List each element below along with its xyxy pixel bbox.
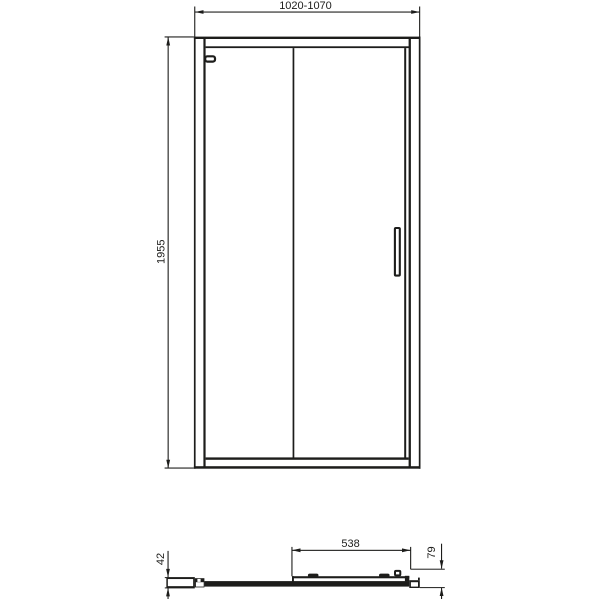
svg-text:42: 42 xyxy=(155,553,167,565)
svg-text:538: 538 xyxy=(341,538,359,550)
svg-text:1020-1070: 1020-1070 xyxy=(279,0,332,12)
svg-text:1955: 1955 xyxy=(155,240,167,264)
svg-text:79: 79 xyxy=(426,546,438,558)
